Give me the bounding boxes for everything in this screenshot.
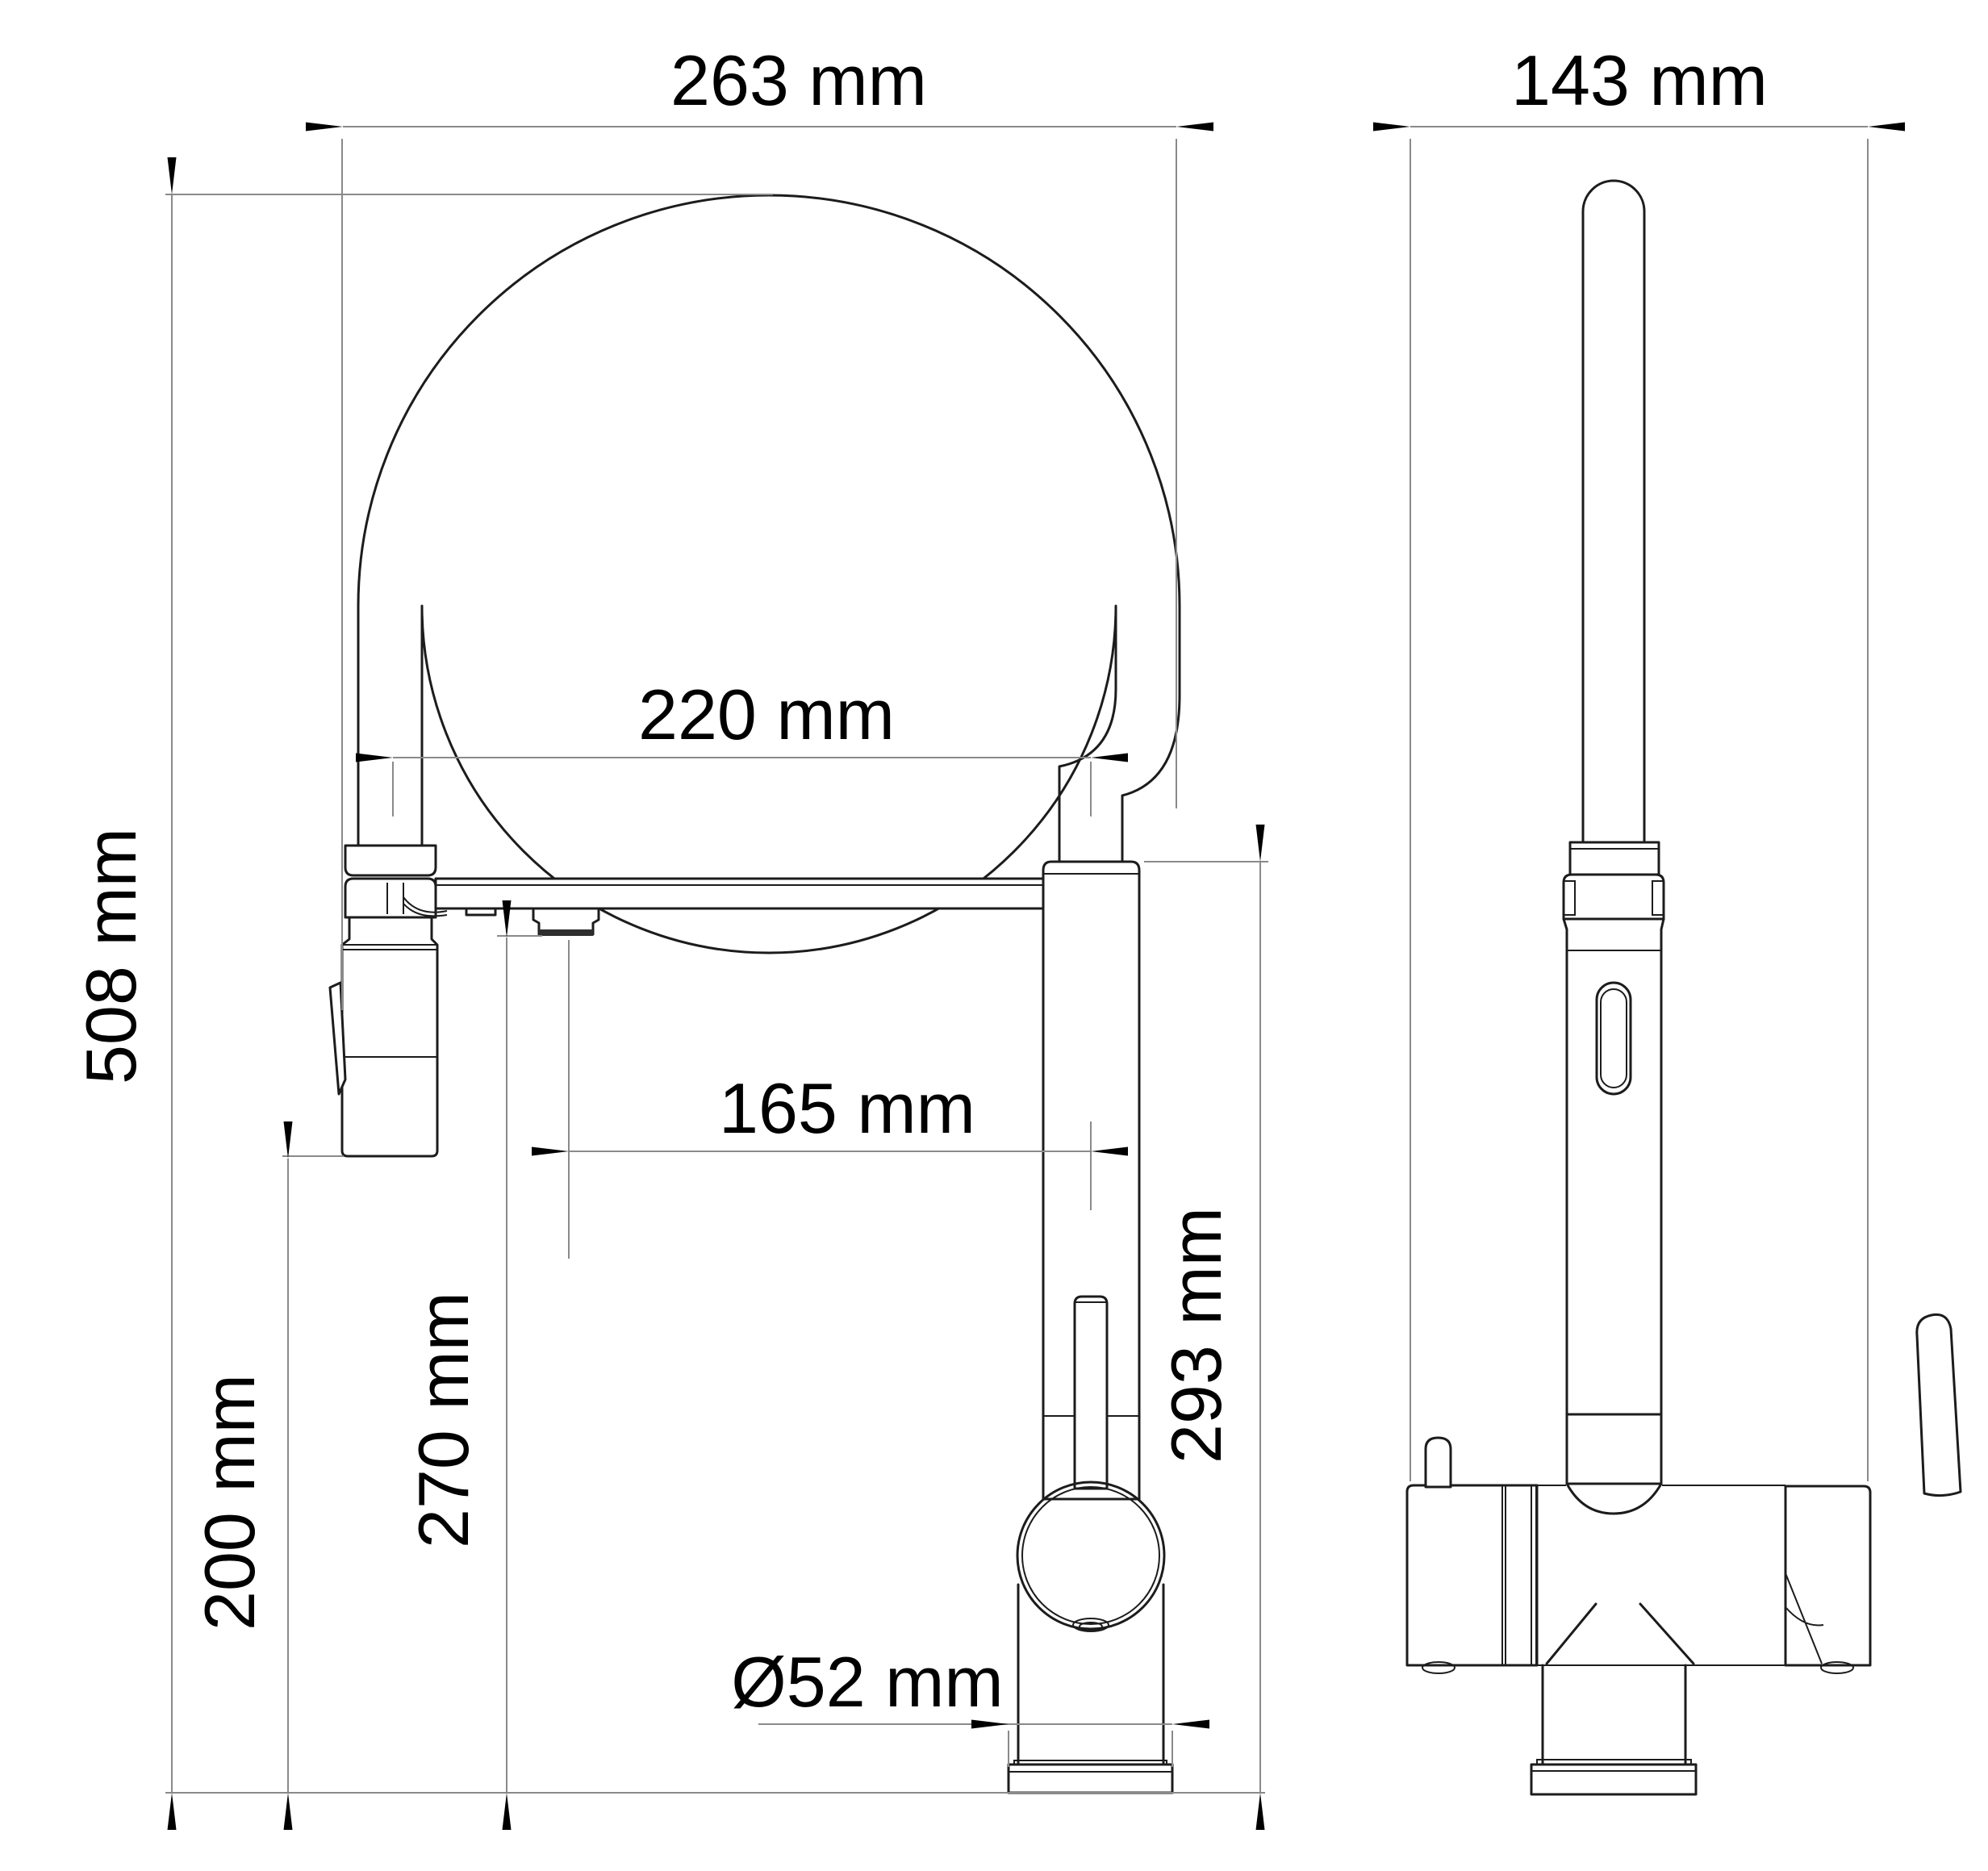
ball-joint-outer: [1017, 1482, 1164, 1629]
front-view: [330, 195, 1180, 1793]
mixer-handle: [1075, 1297, 1107, 1489]
drawing-page: 263 mm 143 mm 220 mm 165 mm Ø52 mm 508 m…: [0, 0, 1988, 1871]
label-outlet-height: 270 mm: [403, 1292, 483, 1548]
label-spout-span: 220 mm: [638, 674, 895, 754]
side-body: [1564, 919, 1664, 1484]
side-tube: [1583, 181, 1644, 842]
side-base-flange: [1531, 1765, 1696, 1794]
side-right-arm: [1785, 1486, 1870, 1665]
spray-head-body: [342, 917, 437, 1156]
side-collar: [1570, 842, 1659, 875]
label-side-width: 143 mm: [1511, 40, 1768, 120]
spray-head-ring: [345, 879, 436, 917]
side-web-diagonals: [1547, 1604, 1694, 1664]
side-base-cylinder: [1543, 1665, 1685, 1765]
base-flange: [1009, 1765, 1172, 1793]
spout-arch-outer: [358, 195, 1180, 860]
label-base-diameter: Ø52 mm: [731, 1642, 1003, 1722]
label-head-clearance: 200 mm: [190, 1374, 269, 1631]
spout-arm-tab: [466, 908, 495, 915]
technical-drawing: 263 mm 143 mm 220 mm 165 mm Ø52 mm 508 m…: [0, 0, 1988, 1871]
side-handle-rod: [1917, 1314, 1961, 1495]
spray-head-collar: [345, 846, 436, 875]
label-overall-width: 263 mm: [670, 40, 927, 120]
side-left-arm: [1407, 1485, 1537, 1665]
side-view: [1407, 181, 1961, 1794]
side-web-concave: [1567, 1484, 1661, 1514]
label-overall-height: 508 mm: [71, 828, 151, 1084]
side-swivel-ring: [1564, 875, 1664, 919]
ball-joint-inner: [1022, 1487, 1159, 1624]
outlet-aerator-face: [539, 929, 593, 936]
side-filter-knob: [1426, 1438, 1451, 1487]
spout-arm: [436, 879, 1049, 908]
base-cylinder: [1018, 1585, 1163, 1765]
label-body-height: 293 mm: [1156, 1207, 1236, 1464]
label-nozzle-reach: 165 mm: [719, 1068, 975, 1148]
